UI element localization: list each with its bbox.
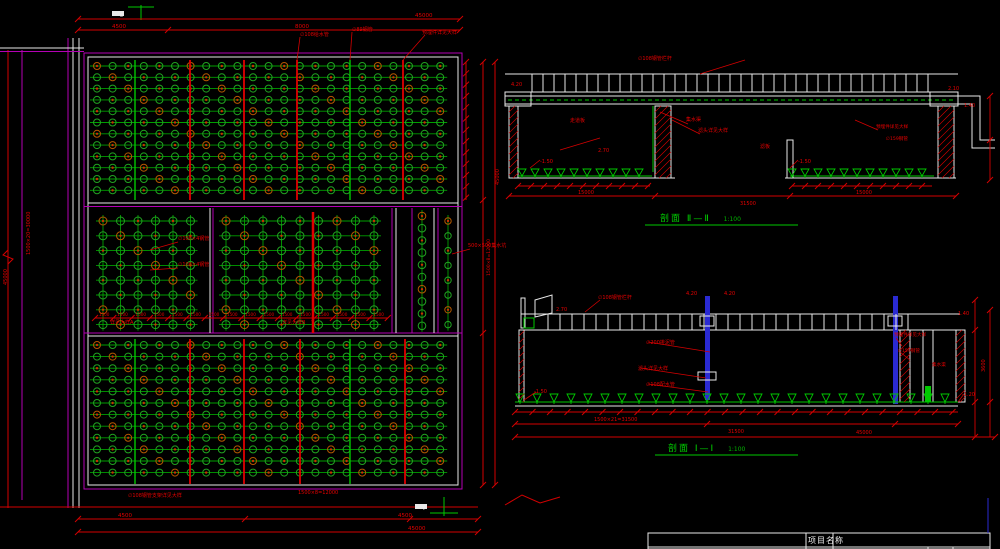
svg-text:1500: 1500 (318, 312, 329, 317)
section-cut-marker-top (112, 5, 154, 20)
annotation-text: ∅108配水管 (646, 381, 675, 388)
annotation-text: 滤头详见大样 (698, 127, 728, 134)
annotation-text: 集水渠 (686, 116, 701, 123)
svg-text:1500: 1500 (300, 312, 311, 317)
annotation-text: -1.20 (962, 392, 975, 398)
svg-text:1500: 1500 (282, 312, 293, 317)
annotation-text: 2.10 (948, 86, 959, 92)
svg-text:1500: 1500 (373, 312, 384, 317)
svg-text:1500: 1500 (355, 312, 366, 317)
annotation-text: 预埋件详见大样 (894, 331, 927, 338)
annotation-text: -1.50 (540, 159, 553, 165)
section-2-structure (505, 74, 995, 178)
annotation-text: 2.70 (556, 307, 567, 313)
annotation-text: 详见大样A (110, 319, 134, 326)
annotation-text: 45000 (495, 169, 501, 185)
annotation-text: -1.50 (798, 159, 811, 165)
svg-text:1500: 1500 (99, 312, 110, 317)
filter-nozzle-grids (90, 63, 451, 477)
svg-text:1500: 1500 (227, 312, 238, 317)
section-1-title-mark: Ⅰ—Ⅰ (695, 444, 715, 454)
svg-text:1500: 1500 (154, 312, 165, 317)
annotation-text: Ⅰ (423, 505, 425, 512)
annotation-text: 4.20 (511, 82, 522, 88)
svg-text:1500: 1500 (264, 312, 275, 317)
annotation-text: 1500×21=31500 (594, 417, 637, 423)
annotation-text: 4500 (112, 24, 126, 30)
annotation-text: 滤头详见大样 (638, 365, 668, 372)
annotation-text: ∅108×4钢管 (178, 261, 209, 268)
section-2-title: 剖面 Ⅱ—Ⅱ 1:100 (660, 211, 741, 224)
annotation-text: 1500×8=12000 (298, 490, 338, 496)
annotation-text: Ⅱ (120, 12, 123, 19)
annotation-text: 31500 (728, 429, 744, 435)
annotation-text: 预埋件详见大样 (876, 123, 909, 130)
annotation-text: ∅159钢管 (898, 347, 920, 354)
annotation-text: ∅89钢管 (352, 26, 373, 33)
annotation-text: 8000 (295, 24, 309, 30)
annotation-text: 滤板 (760, 143, 770, 150)
filter-nozzle-symbols (516, 169, 949, 404)
annotation-text: ∅108×4钢管 (178, 235, 209, 242)
svg-text:1500: 1500 (117, 312, 128, 317)
plan-dimension-lines (0, 19, 495, 532)
plan-feature-lines (135, 60, 405, 484)
title-block-project-label: 项目名称 (808, 535, 844, 546)
cad-drawing: 1500150015001500150015001500150015001500… (0, 0, 1000, 549)
annotation-text: 45000 (856, 430, 872, 436)
annotation-text: -1.50 (534, 389, 547, 395)
annotation-text: ∅159钢管 (886, 135, 908, 142)
annotation-text: 走道板 (570, 117, 585, 124)
annotation-text: 预埋件详见大样 (422, 29, 457, 36)
section-2-title-mark: Ⅱ—Ⅱ (687, 214, 711, 224)
annotation-text: 1.40 (964, 103, 975, 109)
section-1-title-scale: 1:100 (728, 446, 745, 453)
cad-viewport[interactable]: 1500150015001500150015001500150015001500… (0, 0, 1000, 549)
annotation-text: 2.70 (598, 148, 609, 154)
svg-text:1500: 1500 (135, 312, 146, 317)
annotation-text: 45000 (408, 526, 426, 532)
annotation-text: ∅108钢管栏杆 (638, 55, 672, 62)
annotation-text: 45000 (3, 269, 9, 285)
svg-text:1500: 1500 (209, 312, 220, 317)
annotation-text: 4500 (118, 513, 132, 519)
annotation-text: 1500×20=30000 (26, 212, 32, 255)
section-1-title-prefix: 剖面 (668, 444, 690, 454)
annotation-text: 1.40 (958, 311, 969, 317)
annotation-text: ∅200排泥管 (646, 339, 675, 346)
annotation-text: 4500 (398, 513, 412, 519)
annotation-text: 45000 (415, 13, 433, 19)
annotation-text: 1500×8=12000 (486, 239, 492, 276)
annotation-text: 3600 (981, 359, 987, 372)
annotation-text: ∅108钢管栏杆 (598, 294, 632, 301)
section-cut-marker-bottom (415, 495, 560, 516)
section-2-title-prefix: 剖面 (660, 214, 682, 224)
annotation-text: 4.20 (686, 291, 697, 297)
svg-text:1500: 1500 (172, 312, 183, 317)
annotation-text: 4.20 (724, 291, 735, 297)
annotation-text: 15000 (578, 190, 594, 196)
annotation-text: 集水渠 (932, 361, 946, 368)
annotation-text: 详见大样B (282, 319, 306, 326)
plan-left-margin-lines (0, 38, 84, 508)
annotation-text: ∅108钢管支架详见大样 (128, 492, 182, 499)
annotation-text: 15000 (856, 190, 872, 196)
annotation-text: ∅108给水管 (300, 31, 329, 38)
svg-text:1500: 1500 (245, 312, 256, 317)
section-1-title: 剖面 Ⅰ—Ⅰ 1:100 (668, 441, 745, 454)
section-2-title-scale: 1:100 (724, 216, 741, 223)
svg-text:1500: 1500 (337, 312, 348, 317)
svg-text:1500: 1500 (190, 312, 201, 317)
annotation-text: 31500 (740, 201, 756, 207)
